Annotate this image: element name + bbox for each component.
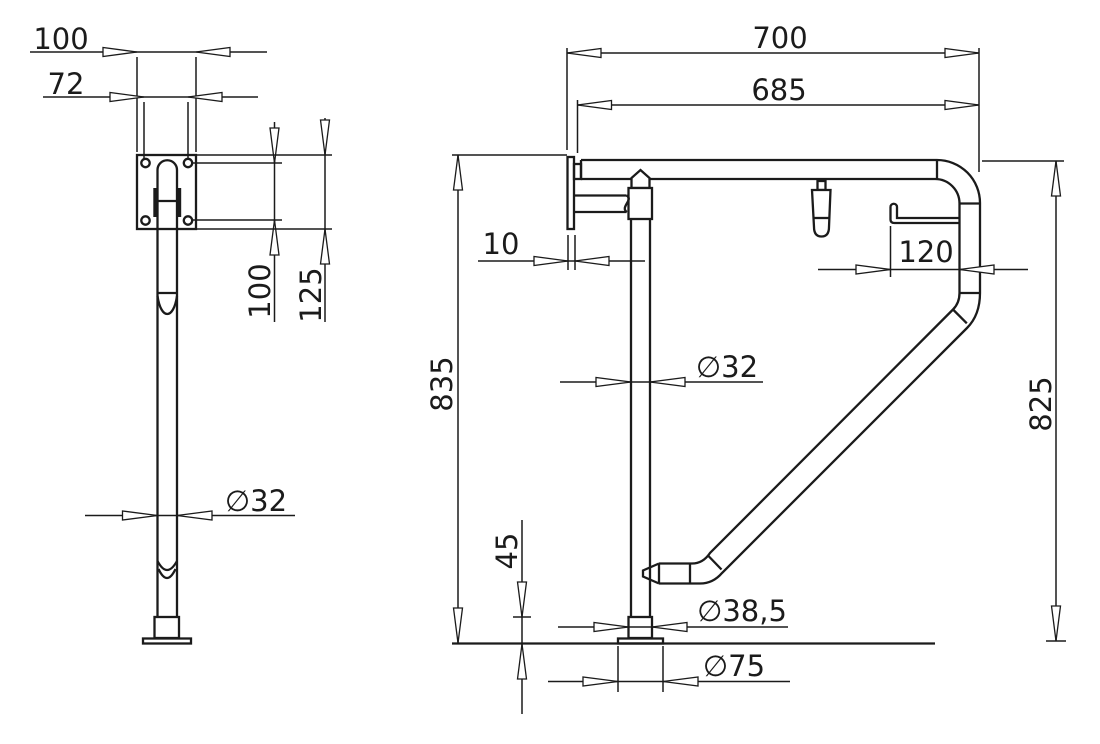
dim-side-tube-diameter: ∅32 <box>560 350 763 387</box>
roll-holder <box>891 204 960 223</box>
dim-hole-spacing-v: 100 <box>193 122 282 322</box>
hinge-cap <box>632 170 650 188</box>
dim-hole-spacing-h: 72 <box>43 67 258 160</box>
dim-height-rear: 825 <box>982 161 1066 641</box>
dim-label-base-plate-diameter: ∅75 <box>703 649 765 683</box>
base-plate-front <box>143 639 191 644</box>
dim-label-height-front: 835 <box>425 356 459 411</box>
dim-label-plate-thickness: 10 <box>483 227 520 261</box>
hinge-joint-arc <box>158 296 178 314</box>
dim-base-plate-diameter: ∅75 <box>548 646 790 692</box>
dim-label-collar-diameter: ∅38,5 <box>697 594 787 628</box>
dim-label-rail-depth: 685 <box>751 73 806 107</box>
dim-label-hole-spacing-v: 100 <box>243 263 277 318</box>
hinge-and-post <box>574 170 652 617</box>
release-handle <box>812 181 831 237</box>
dim-front-tube-diameter: ∅32 <box>85 484 295 520</box>
sleeve-joint-arc <box>158 561 178 570</box>
dim-label-plate-height: 125 <box>294 267 328 322</box>
dim-roll-holder-offset: 120 <box>818 226 1028 277</box>
side-view: 700 685 10 120 <box>425 21 1066 714</box>
dim-label-roll-holder-offset: 120 <box>898 235 953 269</box>
screw-hole <box>184 216 192 224</box>
dim-label-front-tube-diameter: ∅32 <box>225 484 287 518</box>
dim-label-side-tube-diameter: ∅32 <box>696 350 758 384</box>
hinge-block <box>629 188 653 219</box>
screw-hole <box>141 159 149 167</box>
dim-collar-diameter: ∅38,5 <box>558 594 788 632</box>
dim-plate-thickness: 10 <box>478 227 645 270</box>
drawing-canvas: 100 72 100 125 <box>0 0 1100 744</box>
dim-label-height-rear: 825 <box>1024 376 1058 431</box>
dim-collar-height: 45 <box>490 520 531 714</box>
dim-rail-depth: 685 <box>578 73 980 153</box>
dim-label-collar-height: 45 <box>490 533 524 570</box>
screw-hole <box>141 216 149 224</box>
dim-label-hole-spacing-h: 72 <box>48 67 85 101</box>
front-view: 100 72 100 125 <box>30 22 332 644</box>
technical-drawing: 100 72 100 125 <box>0 0 1100 744</box>
dim-label-depth-overall: 700 <box>752 21 807 55</box>
screw-hole <box>184 159 192 167</box>
dim-label-plate-width: 100 <box>33 22 88 56</box>
base-collar-front <box>155 617 180 638</box>
